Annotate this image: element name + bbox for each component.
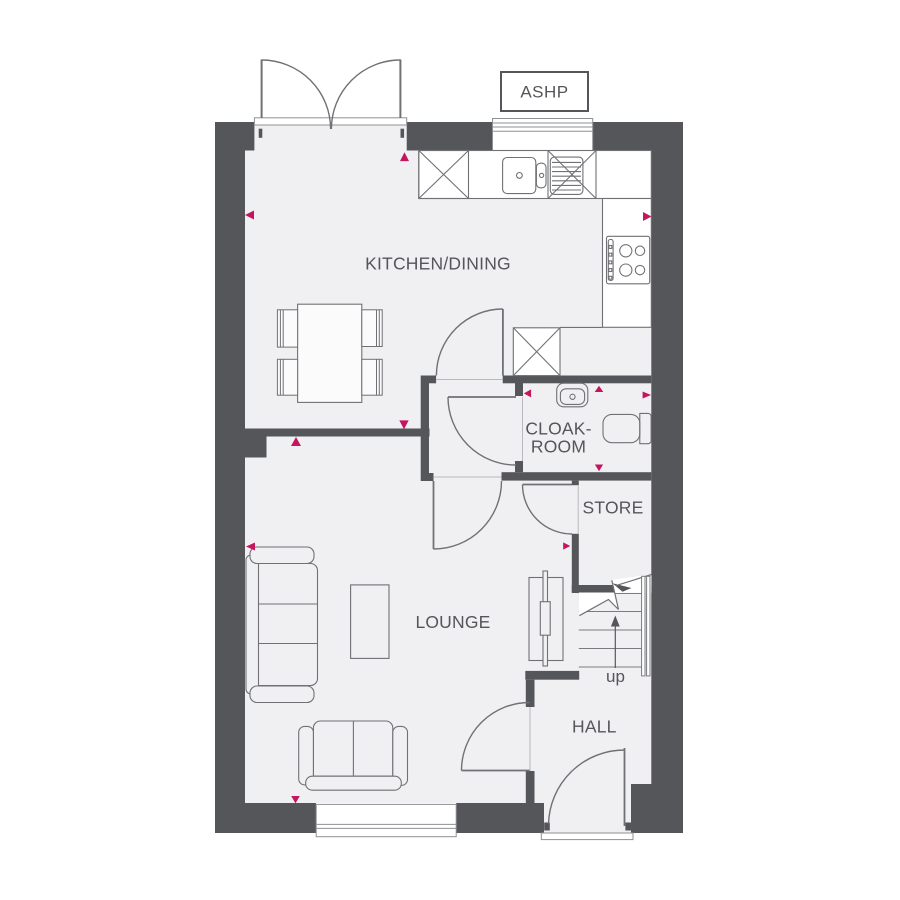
svg-text:ASHP: ASHP [520, 83, 568, 102]
svg-text:STORE: STORE [583, 498, 644, 518]
svg-text:KITCHEN/DINING: KITCHEN/DINING [365, 254, 511, 274]
svg-text:CLOAK-: CLOAK- [525, 419, 591, 439]
svg-text:ROOM: ROOM [531, 437, 586, 457]
svg-text:up: up [606, 667, 625, 686]
svg-text:HALL: HALL [572, 717, 617, 737]
svg-text:LOUNGE: LOUNGE [415, 612, 490, 632]
